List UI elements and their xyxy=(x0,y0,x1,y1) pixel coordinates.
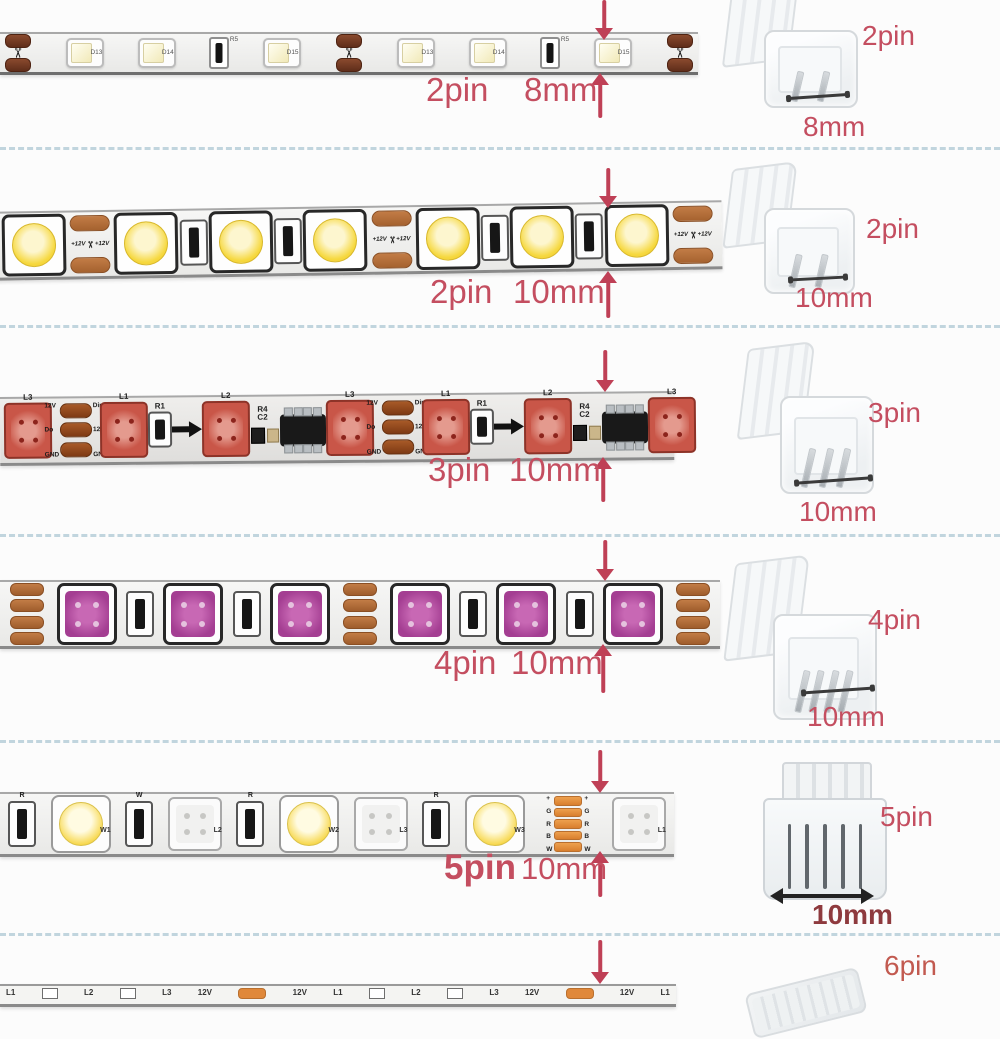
strip-led3528: D14 xyxy=(469,38,507,68)
strip-res2 xyxy=(575,213,604,259)
strip-led5050 xyxy=(390,583,450,645)
connector-width-label: 10mm xyxy=(812,901,893,929)
strip-res: R5 xyxy=(209,37,229,69)
strip-sq xyxy=(120,988,136,999)
strip-cut: ✂ xyxy=(3,32,33,74)
strip-parts: R4 C2 xyxy=(572,406,602,446)
led-strip-connector-infographic: ✂D13D14R5D15✂D13D14R5D15✂ +12V✂+12V+12V✂… xyxy=(0,0,1000,1000)
led-strip-8mm-image: ✂D13D14R5D15✂D13D14R5D15✂ xyxy=(0,32,698,75)
strip-res2: R xyxy=(422,801,450,847)
strip-pads5: +GRBW+GRBW xyxy=(539,795,597,853)
strip-pads4 xyxy=(339,581,381,647)
strip-sq xyxy=(42,988,58,999)
strip-cut: ✂ xyxy=(665,32,695,74)
strip-led5050 xyxy=(208,210,273,273)
strip-res2: W xyxy=(125,801,153,847)
strip-led5050: L2 xyxy=(524,398,572,454)
connector-width-label: 10mm xyxy=(799,498,877,526)
strip-led3528: D14 xyxy=(138,38,176,68)
strip-res2: R xyxy=(236,801,264,847)
width-arrow-down-icon xyxy=(595,0,613,40)
strip-padh xyxy=(238,988,266,999)
clip-connector-6pin-image xyxy=(744,967,868,1039)
strip-txt: 12V xyxy=(293,988,307,997)
strip-res2: R1 xyxy=(148,411,172,447)
strip-sq xyxy=(447,988,463,999)
strip-pads2: +12V✂+12V xyxy=(368,210,415,269)
strip-res2 xyxy=(274,218,303,264)
strip-res2: R1 xyxy=(470,409,494,445)
connector-width-label: 10mm xyxy=(807,703,885,731)
strip-led3528: D15 xyxy=(263,38,301,68)
dashed-separator xyxy=(0,534,1000,537)
strip-res: R5 xyxy=(540,37,560,69)
strip-ic xyxy=(602,411,648,443)
strip-res2 xyxy=(233,591,261,637)
strip-led5050 xyxy=(303,209,368,272)
strip-ledround: W2 xyxy=(279,795,339,853)
strip-res2 xyxy=(126,591,154,637)
strip-pads2: +12V✂+12V xyxy=(669,205,716,264)
strip-led5050 xyxy=(57,583,117,645)
strip-width-label: 10mm xyxy=(521,853,607,884)
strip-pin-count-label: 4pin xyxy=(434,646,496,679)
strip-txt: L2 xyxy=(84,988,93,997)
strip-ledround: W3 xyxy=(465,795,525,853)
strip-ledrgbw: L1 xyxy=(612,797,666,851)
strip-pin-count-label: 3pin xyxy=(428,453,490,486)
strip-led5050 xyxy=(114,212,179,275)
strip-led5050 xyxy=(510,206,575,269)
strip-pads2: +12V✂+12V xyxy=(67,215,114,274)
strip-led5050 xyxy=(604,204,669,267)
strip-pads3: 12VDoGNDDin12VGND xyxy=(52,400,101,460)
strip-width-label: 8mm xyxy=(524,73,597,106)
strip-led5050 xyxy=(2,214,67,277)
strip-txt: L1 xyxy=(661,988,670,997)
led-strip-rgbw-image: RW1WL2RW2L3RW3+GRBW+GRBWL1 xyxy=(0,792,674,857)
strip-txt: L3 xyxy=(162,988,171,997)
strip-width-label: 10mm xyxy=(509,453,601,486)
clip-connector-5pin-image xyxy=(763,762,887,900)
strip-txt: L1 xyxy=(333,988,342,997)
connector-width-label: 10mm xyxy=(795,284,873,312)
strip-pads4 xyxy=(6,581,48,647)
clip-connector-3pin-image xyxy=(738,346,874,498)
strip-pads3: 12VDoGNDDin12VGND xyxy=(374,397,423,457)
strip-txt: 12V xyxy=(525,988,539,997)
dashed-separator xyxy=(0,147,1000,150)
strip-width-label: 10mm xyxy=(511,646,603,679)
strip-padh xyxy=(566,988,594,999)
strip-res2 xyxy=(179,219,208,265)
dashed-separator xyxy=(0,933,1000,936)
strip-width-label: 10mm xyxy=(513,275,605,308)
strip-led3528: D13 xyxy=(397,38,435,68)
strip-res2: R xyxy=(8,801,36,847)
connector-width-label: 8mm xyxy=(803,113,865,141)
strip-txt: L2 xyxy=(411,988,420,997)
strip-led5050 xyxy=(415,207,480,270)
strip-led5050: L1 xyxy=(100,402,148,458)
strip-pin-count-label: 5pin xyxy=(444,850,516,885)
strip-led3528: D15 xyxy=(594,38,632,68)
strip-pin-count-label: 2pin xyxy=(426,73,488,106)
connector-pin-count-label: 5pin xyxy=(880,803,933,831)
dashed-separator xyxy=(0,740,1000,743)
width-arrow-down-icon xyxy=(591,750,609,793)
strip-parts: R4 C2 xyxy=(250,408,280,448)
strip-ledround: W1 xyxy=(51,795,111,853)
connector-pin-count-label: 2pin xyxy=(862,22,915,50)
strip-led5050 xyxy=(163,583,223,645)
strip-txt: 12V xyxy=(198,988,212,997)
led-strip-partial-image: L1L2L312V12VL1L2L312V12VL1 xyxy=(0,984,676,1007)
strip-ledrgbw: L3 xyxy=(354,797,408,851)
strip-ic xyxy=(280,414,326,446)
strip-led3528: D13 xyxy=(66,38,104,68)
strip-led5050 xyxy=(603,583,663,645)
strip-txt: L3 xyxy=(489,988,498,997)
width-arrow-down-icon xyxy=(596,540,614,581)
strip-ledrgbw: L2 xyxy=(168,797,222,851)
dashed-separator xyxy=(0,325,1000,328)
strip-arrow xyxy=(494,418,524,434)
connector-pin-count-label: 6pin xyxy=(884,952,937,980)
strip-res2 xyxy=(459,591,487,637)
strip-cut: ✂ xyxy=(334,32,364,74)
strip-res2 xyxy=(566,591,594,637)
connector-pin-count-label: 4pin xyxy=(868,606,921,634)
strip-txt: 12V xyxy=(620,988,634,997)
led-strip-rgb-image xyxy=(0,580,720,649)
width-arrow-down-icon xyxy=(596,350,614,392)
width-arrow-down-icon xyxy=(599,168,617,208)
strip-sq xyxy=(369,988,385,999)
strip-pads4 xyxy=(672,581,714,647)
strip-txt: L1 xyxy=(6,988,15,997)
strip-led5050: L3 xyxy=(648,397,696,453)
strip-led5050: L2 xyxy=(202,401,250,457)
strip-pin-count-label: 2pin xyxy=(430,275,492,308)
strip-led5050 xyxy=(496,583,556,645)
led-strip-10mm-image: +12V✂+12V+12V✂+12V+12V✂+12V xyxy=(0,200,722,280)
clip-connector-4pin-image xyxy=(725,560,877,724)
connector-pin-count-label: 2pin xyxy=(866,215,919,243)
connector-pin-count-label: 3pin xyxy=(868,399,921,427)
strip-res2 xyxy=(481,215,510,261)
width-arrow-down-icon xyxy=(591,940,609,984)
strip-led5050 xyxy=(270,583,330,645)
strip-arrow xyxy=(172,421,202,437)
strip-led5050: L1 xyxy=(422,399,470,455)
